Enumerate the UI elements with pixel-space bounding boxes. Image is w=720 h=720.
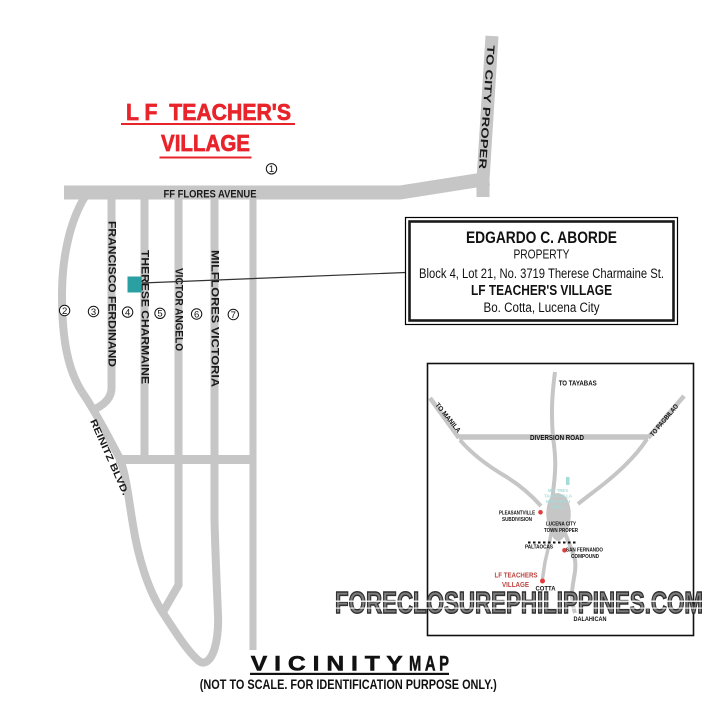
svg-text:V I C I N I T Y: V I C I N I T Y	[251, 653, 403, 676]
svg-text:4: 4	[125, 307, 130, 318]
svg-text:2: 2	[62, 306, 67, 317]
svg-text:PLEASANTVILLE: PLEASANTVILLE	[499, 511, 535, 517]
svg-text:1: 1	[269, 164, 274, 175]
svg-text:VILLAGE: VILLAGE	[161, 130, 250, 156]
svg-text:THERESE CHARMAINE: THERESE CHARMAINE	[139, 250, 151, 384]
svg-text:FORECLOSUREPHILIPPINES.COM: FORECLOSUREPHILIPPINES.COM	[335, 585, 703, 620]
svg-text:3: 3	[91, 307, 96, 318]
svg-text:FRANCISCO FERDINAND: FRANCISCO FERDINAND	[106, 221, 118, 367]
svg-text:6: 6	[194, 309, 199, 320]
svg-text:L F TEACHER'S: L F TEACHER'S	[126, 99, 291, 125]
svg-text:Bo. Cotta, Lucena City: Bo. Cotta, Lucena City	[484, 300, 600, 315]
svg-text:SUBD.: SUBD.	[551, 505, 565, 510]
svg-text:LF TEACHERS: LF TEACHERS	[495, 573, 538, 580]
svg-text:PALTAOCAS: PALTAOCAS	[525, 545, 553, 551]
svg-text:FF FLORES AVENUE: FF FLORES AVENUE	[164, 189, 257, 201]
svg-text:SUBDIVISION: SUBDIVISION	[502, 517, 532, 523]
svg-text:Block 4, Lot 21, No. 3719 Ther: Block 4, Lot 21, No. 3719 Therese Charma…	[419, 266, 664, 281]
svg-text:MILFLORES VICTORIA: MILFLORES VICTORIA	[209, 250, 221, 387]
svg-text:TOWN PROPER: TOWN PROPER	[544, 528, 578, 534]
svg-text:MA. TRES: MA. TRES	[548, 488, 568, 493]
svg-text:LUCENA CITY: LUCENA CITY	[546, 522, 576, 528]
svg-text:7: 7	[231, 310, 236, 321]
svg-text:TO TAYABAS: TO TAYABAS	[559, 381, 597, 388]
svg-text:PROPERTY: PROPERTY	[514, 248, 571, 262]
svg-text:MONOPOLI: MONOPOLI	[546, 499, 570, 504]
svg-text:COMPOUND: COMPOUND	[571, 554, 599, 560]
svg-text:VICTOR ANGELO: VICTOR ANGELO	[173, 268, 185, 351]
svg-text:SAN FERNANDO: SAN FERNANDO	[566, 548, 604, 554]
svg-text:(NOT TO SCALE. FOR IDENTIFICAT: (NOT TO SCALE. FOR IDENTIFICATION PURPOS…	[200, 676, 497, 692]
svg-text:M A P: M A P	[409, 653, 449, 676]
svg-text:EDGARDO C. ABORDE: EDGARDO C. ABORDE	[466, 228, 617, 247]
svg-text:DIVERSION ROAD: DIVERSION ROAD	[530, 433, 584, 442]
svg-text:5: 5	[157, 309, 162, 320]
svg-text:TACXR VILLA: TACXR VILLA	[544, 494, 572, 499]
svg-text:LF TEACHER'S VILLAGE: LF TEACHER'S VILLAGE	[471, 283, 612, 299]
